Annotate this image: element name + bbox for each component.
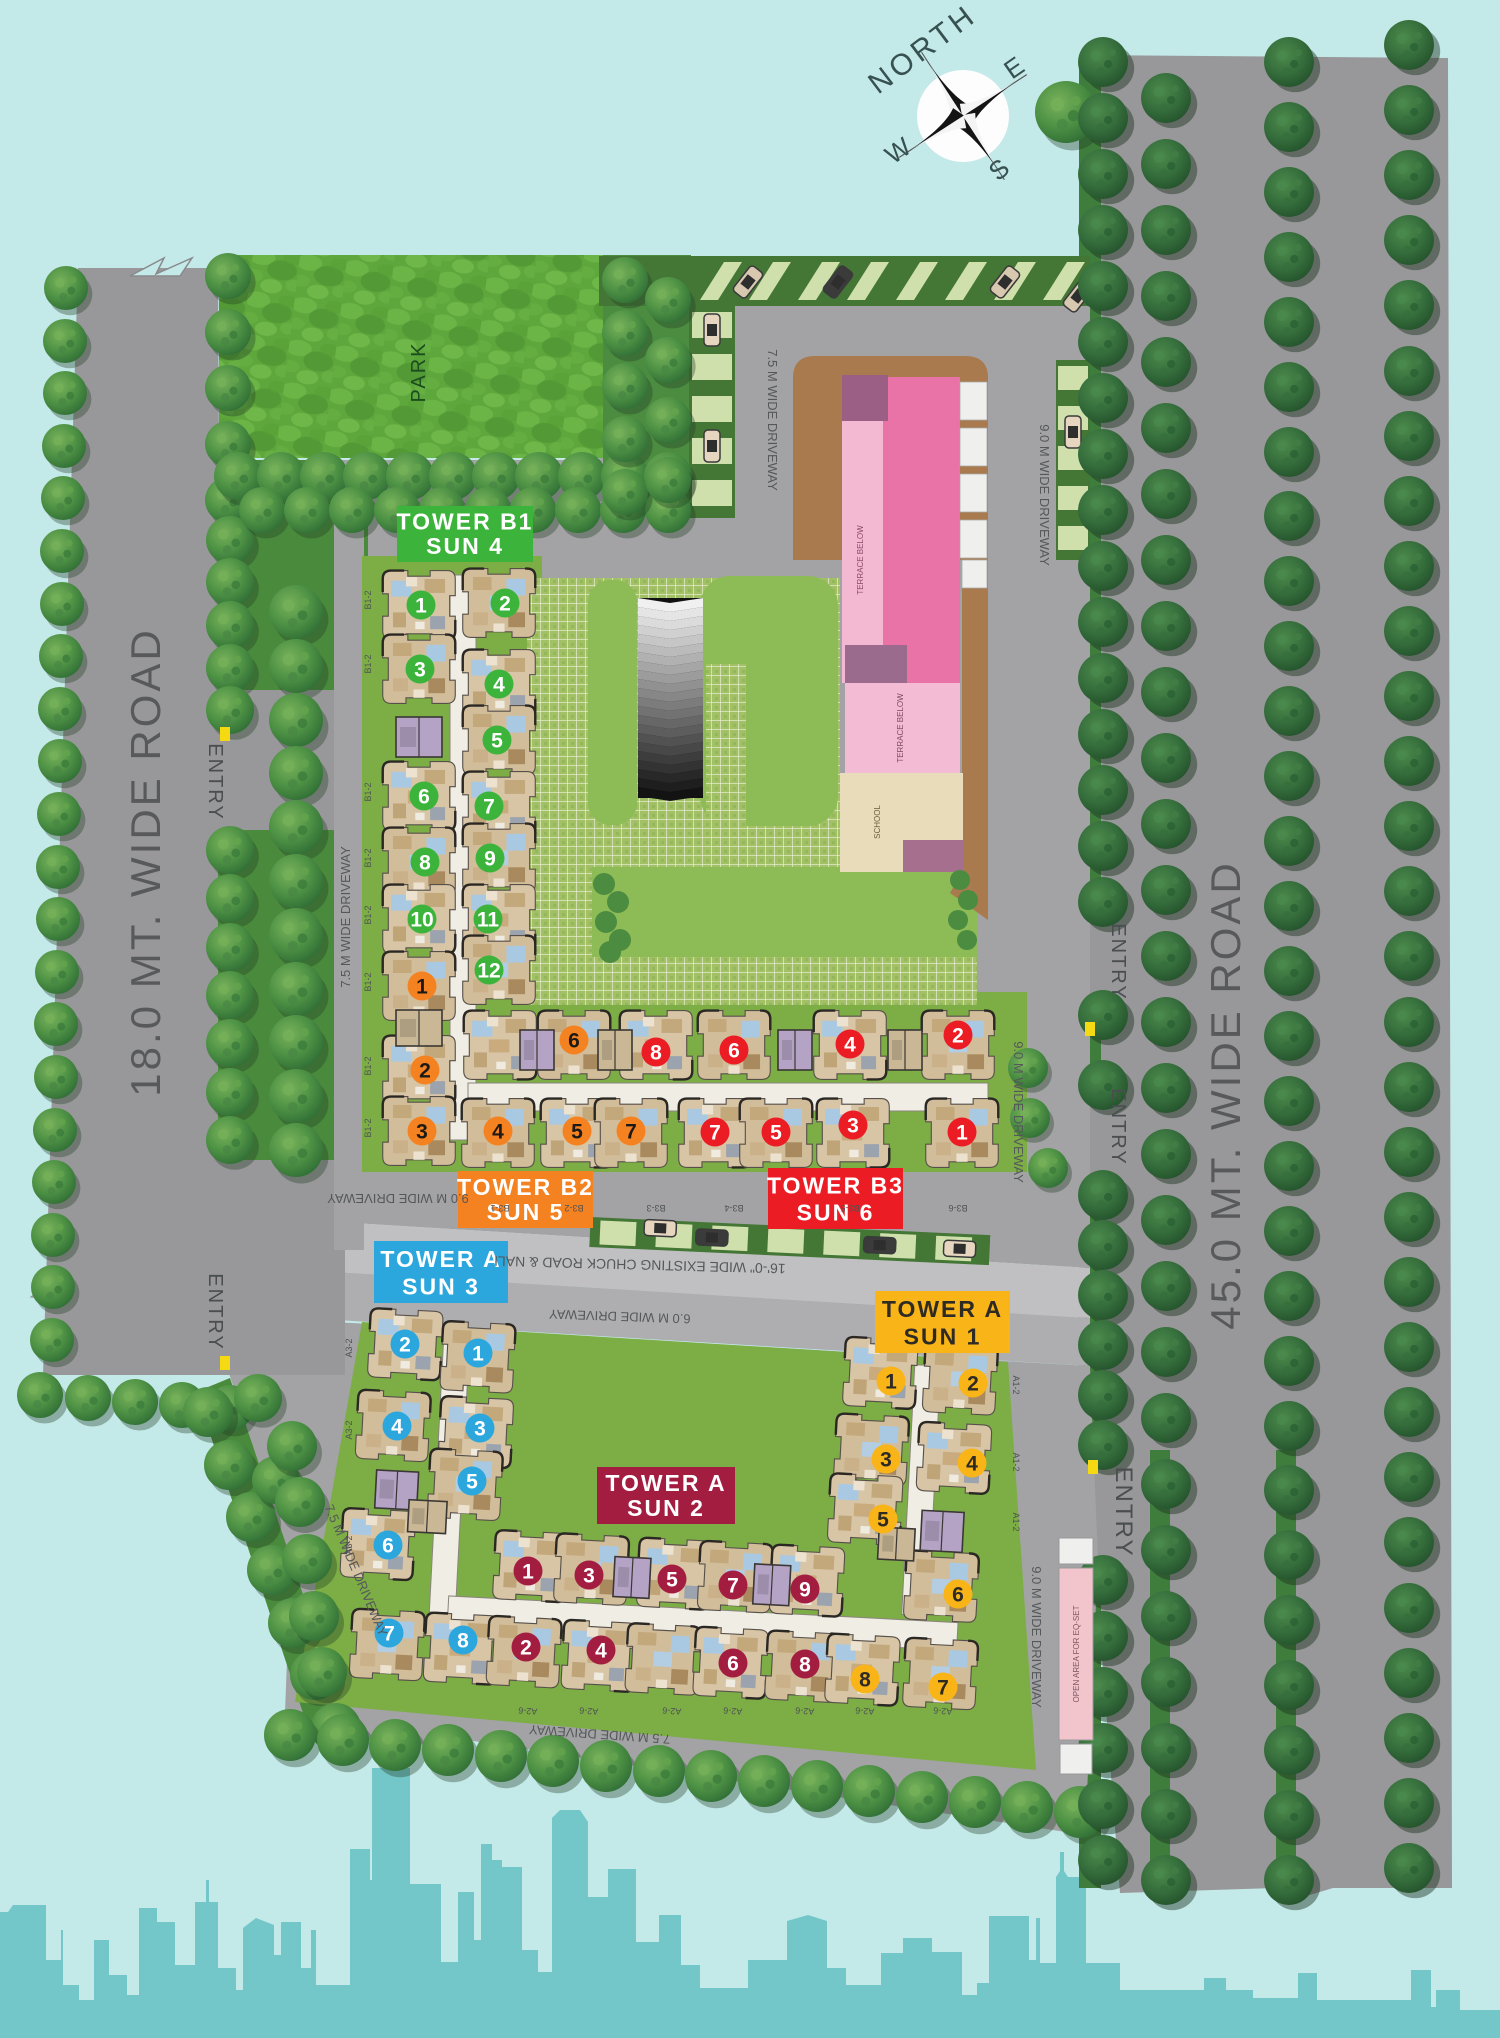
svg-text:9.0 M WIDE DRIVEWAY: 9.0 M WIDE DRIVEWAY <box>327 1191 469 1206</box>
svg-text:6: 6 <box>382 1534 394 1557</box>
svg-text:45.0 MT. WIDE ROAD: 45.0 MT. WIDE ROAD <box>1202 860 1249 1329</box>
svg-text:SUN 3: SUN 3 <box>402 1273 480 1299</box>
svg-text:7: 7 <box>937 1676 949 1699</box>
svg-text:2: 2 <box>520 1636 532 1659</box>
svg-text:ENTRY: ENTRY <box>1107 923 1129 1000</box>
svg-text:A3-2: A3-2 <box>344 1420 354 1439</box>
svg-text:ENTRY: ENTRY <box>1107 1088 1129 1165</box>
svg-text:TOWER B3: TOWER B3 <box>767 1173 904 1199</box>
svg-text:4: 4 <box>844 1033 856 1056</box>
svg-text:B1-2: B1-2 <box>363 905 373 924</box>
svg-text:9: 9 <box>484 847 496 870</box>
svg-text:11: 11 <box>477 908 500 931</box>
svg-text:B3-3: B3-3 <box>646 1203 665 1213</box>
svg-text:B1-2: B1-2 <box>363 590 373 609</box>
svg-text:ENTRY: ENTRY <box>1110 1467 1137 1558</box>
svg-text:B1-2: B1-2 <box>363 782 373 801</box>
svg-text:TERRACE BELOW: TERRACE BELOW <box>856 525 865 595</box>
svg-text:10: 10 <box>410 908 433 931</box>
svg-text:TOWER A: TOWER A <box>882 1296 1003 1322</box>
svg-text:5: 5 <box>770 1121 782 1144</box>
svg-text:7.5 M WIDE DRIVEWAY: 7.5 M WIDE DRIVEWAY <box>338 846 353 988</box>
svg-text:1: 1 <box>522 1560 534 1583</box>
svg-text:1: 1 <box>416 975 428 998</box>
svg-text:4: 4 <box>493 673 505 696</box>
svg-text:TOWER B1: TOWER B1 <box>397 509 534 535</box>
svg-text:8: 8 <box>799 1653 811 1676</box>
svg-text:6: 6 <box>418 785 430 808</box>
svg-text:TOWER A: TOWER A <box>380 1246 501 1272</box>
svg-text:5: 5 <box>491 729 503 752</box>
svg-text:3: 3 <box>847 1114 859 1137</box>
svg-text:6: 6 <box>952 1583 964 1606</box>
svg-text:7: 7 <box>483 795 495 818</box>
svg-text:A2-6: A2-6 <box>579 1705 599 1716</box>
svg-text:7: 7 <box>625 1120 637 1143</box>
svg-text:5: 5 <box>571 1120 583 1143</box>
svg-text:A3-2: A3-2 <box>344 1535 354 1554</box>
svg-text:B1-2: B1-2 <box>363 972 373 991</box>
svg-text:B3-6: B3-6 <box>948 1203 967 1213</box>
svg-text:SUN 2: SUN 2 <box>627 1495 705 1521</box>
svg-text:6: 6 <box>727 1652 739 1675</box>
svg-text:2: 2 <box>967 1372 979 1395</box>
svg-text:6: 6 <box>728 1039 740 1062</box>
svg-text:5: 5 <box>466 1470 478 1493</box>
svg-text:SCHOOL: SCHOOL <box>873 805 882 839</box>
svg-text:12: 12 <box>477 959 500 982</box>
svg-text:8: 8 <box>419 851 431 874</box>
svg-text:B1-2: B1-2 <box>363 1056 373 1075</box>
svg-text:18.0 MT. WIDE ROAD: 18.0 MT. WIDE ROAD <box>122 627 169 1096</box>
svg-text:2: 2 <box>399 1333 411 1356</box>
svg-text:4: 4 <box>966 1452 978 1475</box>
svg-text:SUN 1: SUN 1 <box>904 1323 982 1349</box>
svg-text:9.0 M WIDE DRIVEWAY: 9.0 M WIDE DRIVEWAY <box>1029 1566 1044 1708</box>
svg-text:A1-2: A1-2 <box>1011 1512 1021 1531</box>
svg-text:TOWER B2: TOWER B2 <box>457 1174 594 1200</box>
svg-text:2: 2 <box>952 1024 964 1047</box>
svg-text:A2-6: A2-6 <box>855 1705 875 1716</box>
svg-text:6: 6 <box>568 1029 580 1052</box>
svg-text:A2-6: A2-6 <box>662 1705 682 1716</box>
svg-text:9.0 M WIDE DRIVEWAY: 9.0 M WIDE DRIVEWAY <box>1037 424 1052 566</box>
svg-text:A1-2: A1-2 <box>1011 1375 1021 1394</box>
svg-text:4: 4 <box>492 1120 504 1143</box>
svg-text:5: 5 <box>877 1508 889 1531</box>
svg-text:A2-6: A2-6 <box>933 1705 953 1716</box>
svg-text:7: 7 <box>727 1574 739 1597</box>
svg-text:TOWER A: TOWER A <box>605 1470 726 1496</box>
svg-text:2: 2 <box>419 1059 431 1082</box>
svg-text:ENTRY: ENTRY <box>204 1273 226 1350</box>
svg-text:B1-2: B1-2 <box>363 1118 373 1137</box>
svg-text:1: 1 <box>885 1370 897 1393</box>
svg-text:2: 2 <box>499 592 511 615</box>
svg-text:ENTRY: ENTRY <box>204 743 226 820</box>
svg-text:8: 8 <box>457 1629 469 1652</box>
svg-text:5: 5 <box>666 1568 678 1591</box>
svg-text:3: 3 <box>474 1417 486 1440</box>
svg-text:7.5 M WIDE DRIVEWAY: 7.5 M WIDE DRIVEWAY <box>765 349 780 491</box>
svg-text:4: 4 <box>391 1415 403 1438</box>
svg-text:B1-2: B1-2 <box>363 848 373 867</box>
svg-text:TERRACE BELOW: TERRACE BELOW <box>896 693 905 763</box>
svg-text:A2-6: A2-6 <box>723 1705 743 1716</box>
svg-text:A2-6: A2-6 <box>518 1705 538 1716</box>
svg-text:A1-2: A1-2 <box>1011 1452 1021 1471</box>
svg-text:B1-2: B1-2 <box>363 654 373 673</box>
svg-text:9.0 M WIDE DRIVEWAY: 9.0 M WIDE DRIVEWAY <box>1011 1041 1026 1183</box>
svg-text:3: 3 <box>416 1120 428 1143</box>
svg-text:B3-4: B3-4 <box>724 1203 743 1213</box>
svg-text:PARK: PARK <box>408 342 430 403</box>
svg-text:SUN 4: SUN 4 <box>426 533 504 559</box>
svg-text:B3-5: B3-5 <box>840 1203 859 1213</box>
svg-text:3: 3 <box>880 1448 892 1471</box>
svg-text:OPEN AREA FOR EQ-SET: OPEN AREA FOR EQ-SET <box>1072 1605 1081 1702</box>
svg-text:1: 1 <box>472 1342 484 1365</box>
svg-text:1: 1 <box>956 1121 968 1144</box>
svg-text:SUN 6: SUN 6 <box>797 1199 875 1225</box>
svg-text:8: 8 <box>650 1041 662 1064</box>
svg-text:4: 4 <box>595 1639 607 1662</box>
svg-text:B3-2: B3-2 <box>564 1203 583 1213</box>
svg-text:A2-6: A2-6 <box>795 1705 815 1716</box>
svg-text:A3-2: A3-2 <box>344 1338 354 1357</box>
svg-text:1: 1 <box>415 594 427 617</box>
svg-text:B3-1: B3-1 <box>490 1203 509 1213</box>
svg-text:8: 8 <box>859 1668 871 1691</box>
svg-text:3: 3 <box>414 658 426 681</box>
svg-text:7: 7 <box>709 1121 721 1144</box>
svg-text:3: 3 <box>583 1564 595 1587</box>
svg-text:9: 9 <box>799 1578 811 1601</box>
